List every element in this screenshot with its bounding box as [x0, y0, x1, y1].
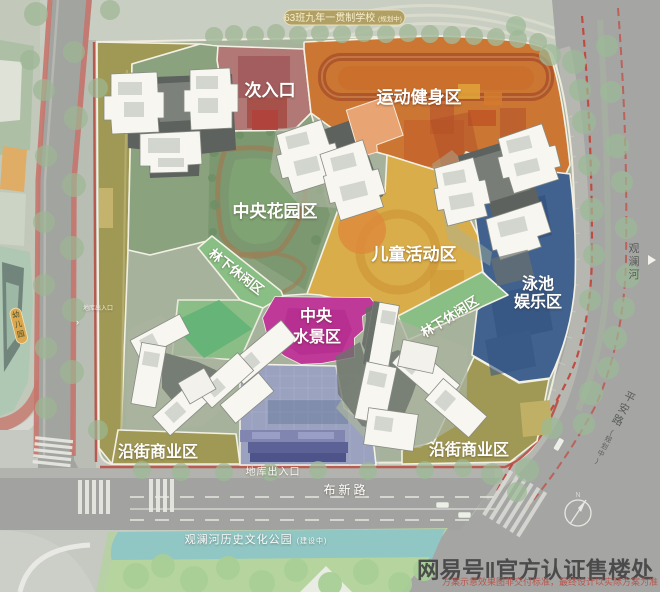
svg-text:水景区: 水景区	[293, 327, 341, 346]
svg-text:娱乐区: 娱乐区	[514, 292, 562, 311]
svg-text:N: N	[575, 492, 580, 499]
svg-text:沿街商业区: 沿街商业区	[429, 440, 509, 459]
svg-text:地库出入口: 地库出入口	[83, 304, 113, 312]
svg-text:观: 观	[629, 242, 640, 255]
svg-text:中央花园区: 中央花园区	[233, 201, 318, 221]
svg-text:沿街商业区: 沿街商业区	[118, 442, 198, 461]
svg-text:运动健身区: 运动健身区	[377, 87, 462, 107]
svg-text:方案示意效果图非交付标准，最终设计以实际方案为准: 方案示意效果图非交付标准，最终设计以实际方案为准	[442, 576, 658, 587]
svg-text:泳池: 泳池	[522, 274, 554, 293]
svg-text:澜: 澜	[629, 254, 640, 268]
svg-text:中央: 中央	[300, 306, 333, 325]
svg-text:次入口: 次入口	[245, 80, 296, 100]
svg-text:布新路: 布新路	[323, 482, 368, 497]
svg-text:儿童活动区: 儿童活动区	[371, 244, 457, 264]
svg-text:地库出入口: 地库出入口	[246, 465, 301, 478]
svg-text:›: ›	[76, 317, 79, 327]
svg-text:河: 河	[629, 268, 640, 281]
